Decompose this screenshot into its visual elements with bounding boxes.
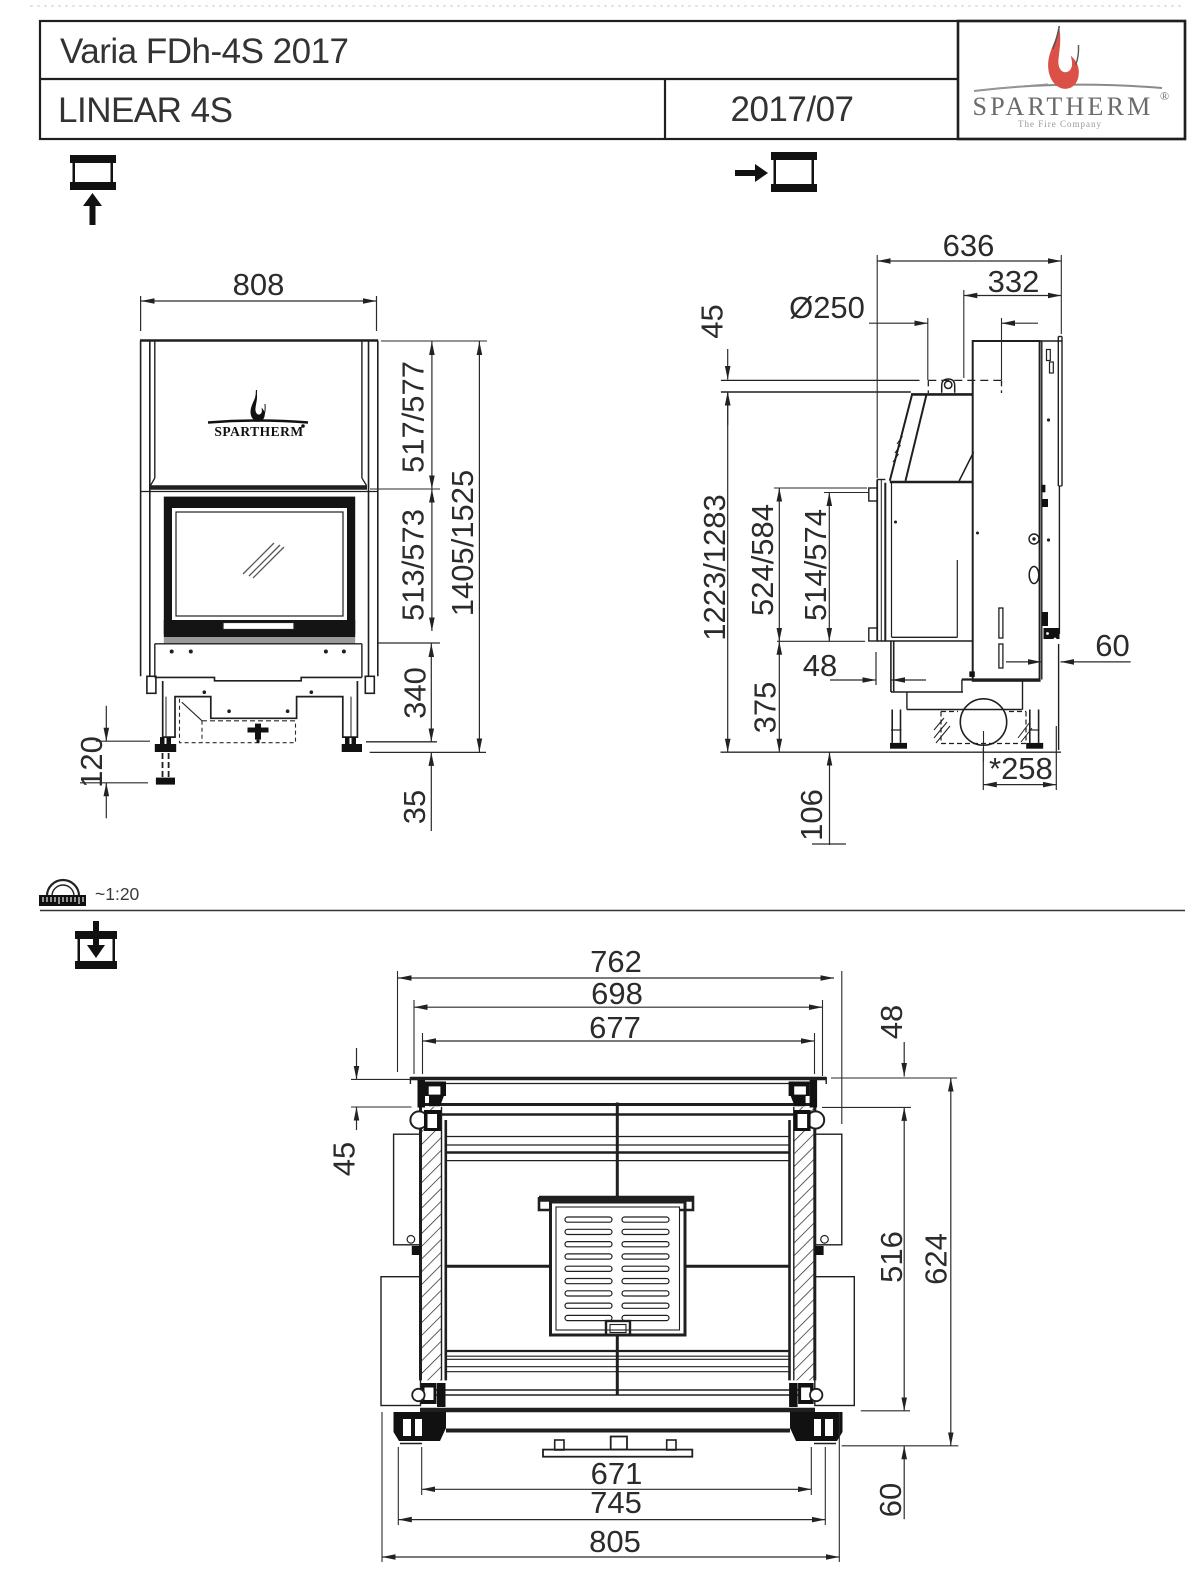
svg-text:808: 808 <box>233 267 285 302</box>
svg-text:340: 340 <box>398 667 433 719</box>
svg-text:The Fire Company: The Fire Company <box>1018 119 1102 129</box>
svg-text:120: 120 <box>74 736 109 788</box>
svg-text:677: 677 <box>589 1010 641 1045</box>
svg-text:745: 745 <box>590 1485 642 1520</box>
svg-text:2017/07: 2017/07 <box>730 90 853 129</box>
svg-text:332: 332 <box>988 264 1040 299</box>
svg-text:513/573: 513/573 <box>396 509 431 621</box>
svg-text:45: 45 <box>695 304 730 338</box>
svg-text:48: 48 <box>803 648 837 683</box>
svg-text:762: 762 <box>590 944 642 979</box>
svg-text:1223/1283: 1223/1283 <box>697 494 732 641</box>
svg-text:®: ® <box>1160 89 1169 103</box>
svg-text:48: 48 <box>874 1005 909 1039</box>
svg-text:517/577: 517/577 <box>396 361 431 473</box>
svg-text:516: 516 <box>874 1231 909 1283</box>
svg-text:Varia FDh-4S 2017: Varia FDh-4S 2017 <box>60 32 349 71</box>
svg-text:*258: *258 <box>989 751 1053 786</box>
svg-text:698: 698 <box>591 976 643 1011</box>
svg-text:1405/1525: 1405/1525 <box>445 470 480 617</box>
svg-text:106: 106 <box>794 789 829 841</box>
svg-text:Ø250: Ø250 <box>789 290 865 325</box>
svg-text:SPARTHERM: SPARTHERM <box>973 92 1154 121</box>
svg-text:524/584: 524/584 <box>745 504 780 616</box>
svg-text:45: 45 <box>327 1142 362 1176</box>
svg-text:35: 35 <box>397 790 432 824</box>
svg-text:514/574: 514/574 <box>798 509 833 621</box>
svg-text:~1:20: ~1:20 <box>95 884 140 904</box>
svg-text:60: 60 <box>1095 628 1129 663</box>
svg-text:636: 636 <box>943 228 995 263</box>
svg-text:624: 624 <box>919 1233 954 1285</box>
svg-text:805: 805 <box>589 1524 641 1559</box>
svg-text:60: 60 <box>873 1483 908 1517</box>
svg-text:SPARTHERM: SPARTHERM <box>214 424 303 439</box>
svg-text:375: 375 <box>748 682 783 734</box>
svg-text:LINEAR 4S: LINEAR 4S <box>58 91 232 130</box>
